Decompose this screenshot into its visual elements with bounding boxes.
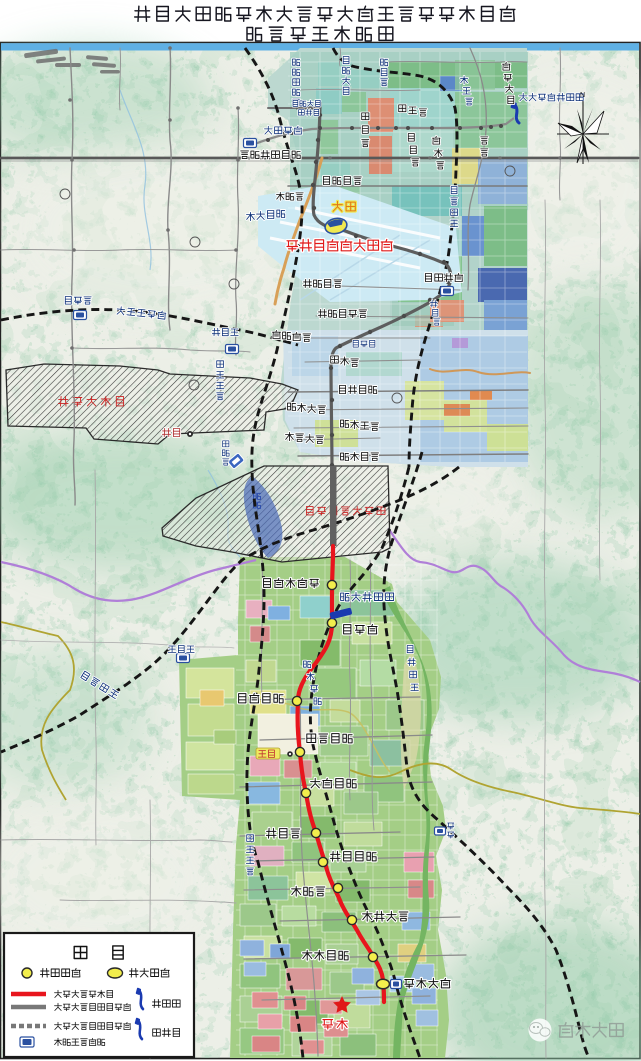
svg-text:N: N (580, 92, 585, 99)
